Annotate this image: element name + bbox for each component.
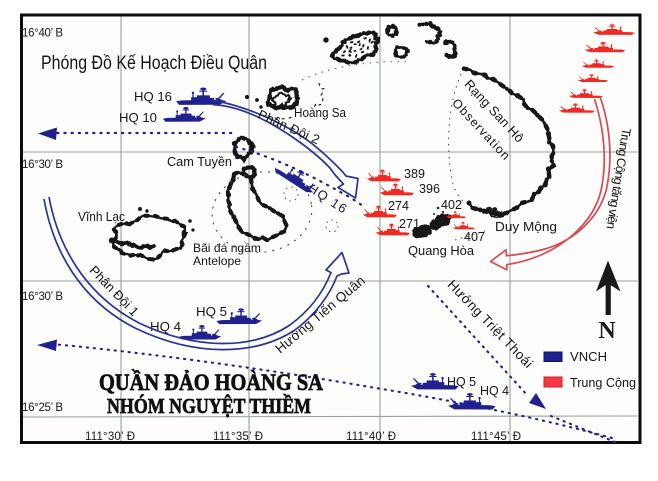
svg-text:HQ 16: HQ 16 [134,90,172,104]
svg-text:396: 396 [419,182,440,196]
svg-text:HQ 4: HQ 4 [150,320,181,334]
svg-text:389: 389 [404,167,425,181]
svg-text:111°45’ Đ: 111°45’ Đ [471,431,521,443]
svg-text:HQ 4: HQ 4 [480,384,509,398]
svg-text:402: 402 [441,198,462,212]
svg-text:111°35’ Đ: 111°35’ Đ [213,431,263,443]
svg-text:QUẦN ĐẢO HOÀNG SA: QUẦN ĐẢO HOÀNG SA [99,369,323,396]
svg-text:271: 271 [399,217,420,231]
svg-text:HQ 5: HQ 5 [447,375,476,389]
svg-text:Bãi đá ngầm: Bãi đá ngầm [193,241,261,255]
svg-text:Hoàng Sa: Hoàng Sa [294,106,346,120]
svg-text:Cam Tuyền: Cam Tuyền [167,155,232,169]
svg-text:Quang Hòa: Quang Hòa [408,244,474,258]
svg-text:Trung Cộng: Trung Cộng [570,375,636,390]
svg-text:16°25’ B: 16°25’ B [22,402,63,414]
svg-text:111°30’ Đ: 111°30’ Đ [85,431,135,443]
svg-text:Phóng Đồ Kế Hoạch Điều Quân: Phóng Đồ Kế Hoạch Điều Quân [41,53,267,74]
svg-text:111°40’ Đ: 111°40’ Đ [346,431,396,443]
svg-text:16°30’ B: 16°30’ B [22,159,63,171]
svg-text:NHÓM NGUYỆT THIỀM: NHÓM NGUYỆT THIỀM [107,394,311,418]
svg-text:407: 407 [464,230,485,244]
svg-text:16°30’ B: 16°30’ B [22,291,63,303]
svg-text:HQ 10: HQ 10 [119,111,157,125]
svg-text:VNCH: VNCH [570,349,607,364]
svg-text:N: N [598,318,616,344]
svg-text:274: 274 [388,199,409,213]
svg-text:Vĩnh Lạc: Vĩnh Lạc [78,210,125,224]
svg-text:HQ 5: HQ 5 [196,305,227,319]
svg-text:Duy Mộng: Duy Mộng [495,220,557,234]
svg-text:Antelope: Antelope [193,254,241,268]
svg-text:16°40’ B: 16°40’ B [22,28,63,40]
